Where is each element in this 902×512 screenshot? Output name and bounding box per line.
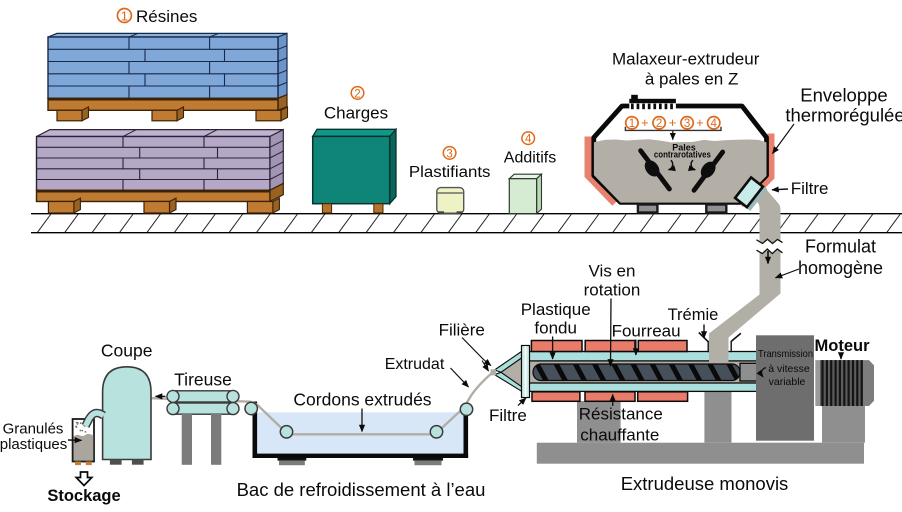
svg-text:rotation: rotation: [584, 281, 641, 300]
svg-text:Coupe: Coupe: [101, 341, 153, 361]
svg-text:1: 1: [121, 8, 128, 23]
svg-text:Formulat: Formulat: [805, 237, 876, 257]
svg-text:Bac de refroidissement à l’eau: Bac de refroidissement à l’eau: [237, 479, 486, 500]
svg-text:Extrudeuse monovis: Extrudeuse monovis: [621, 473, 789, 494]
svg-text:Stockage: Stockage: [47, 487, 120, 505]
svg-text:4: 4: [710, 118, 717, 130]
svg-text:Résines: Résines: [136, 7, 197, 26]
svg-text:à pales en Z: à pales en Z: [645, 70, 739, 89]
svg-text:variable: variable: [769, 376, 806, 388]
svg-text:Transmission: Transmission: [758, 348, 813, 360]
svg-text:contrarotatives: contrarotatives: [654, 150, 711, 160]
svg-text:Cordons extrudés: Cordons extrudés: [293, 390, 431, 410]
svg-text:Malaxeur-extrudeur: Malaxeur-extrudeur: [612, 50, 760, 69]
svg-text:Plastique: Plastique: [521, 300, 591, 319]
svg-text:fondu: fondu: [534, 319, 577, 338]
svg-text:chauffante: chauffante: [580, 426, 659, 445]
svg-text:3: 3: [684, 118, 690, 130]
svg-text:Granulés: Granulés: [3, 421, 64, 438]
svg-text:homogène: homogène: [798, 258, 883, 278]
svg-text:+: +: [641, 115, 649, 130]
svg-text:Fourreau: Fourreau: [612, 322, 681, 341]
svg-text:thermorégulée: thermorégulée: [785, 105, 902, 126]
svg-text:Filtre: Filtre: [489, 406, 527, 425]
svg-text:3: 3: [446, 148, 452, 160]
svg-text:Additifs: Additifs: [504, 150, 556, 167]
svg-text:Plastifiants: Plastifiants: [409, 164, 491, 181]
svg-text:+: +: [669, 115, 677, 130]
svg-text:à vitesse: à vitesse: [768, 363, 810, 375]
svg-text:1: 1: [629, 118, 635, 130]
svg-text:Moteur: Moteur: [815, 337, 871, 355]
svg-text:Résistance: Résistance: [579, 405, 663, 424]
svg-text:Vis en: Vis en: [589, 262, 636, 281]
svg-text:Charges: Charges: [324, 104, 388, 123]
svg-text:2: 2: [354, 88, 360, 100]
svg-text:plastiques: plastiques: [0, 436, 67, 453]
svg-text:Tireuse: Tireuse: [174, 370, 232, 390]
svg-text:Extrudat: Extrudat: [385, 356, 445, 373]
svg-text:Filière: Filière: [439, 321, 485, 340]
svg-text:4: 4: [525, 134, 532, 146]
svg-text:+: +: [696, 115, 704, 130]
svg-text:2: 2: [656, 118, 662, 130]
svg-text:Enveloppe: Enveloppe: [800, 85, 887, 106]
svg-text:Filtre: Filtre: [791, 179, 829, 198]
